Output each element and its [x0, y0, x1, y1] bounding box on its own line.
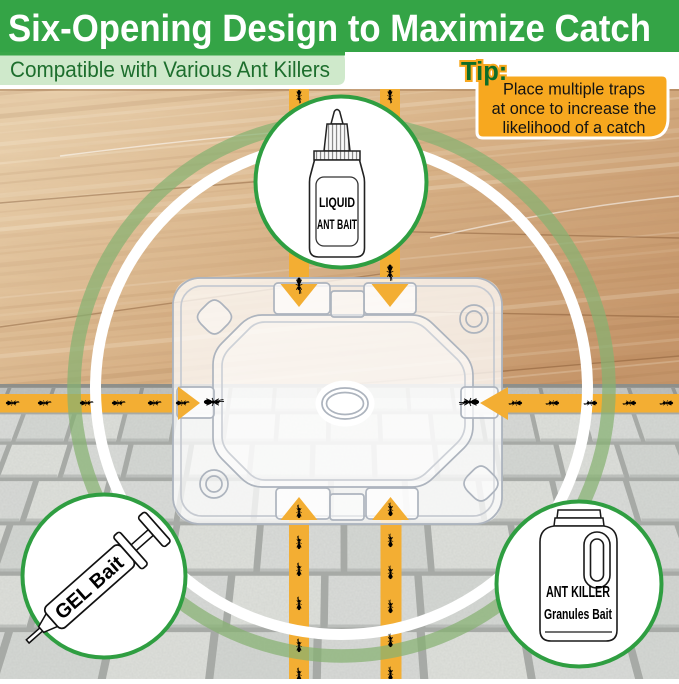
- svg-text:Place multiple traps: Place multiple traps: [503, 81, 645, 99]
- svg-text:at once to increase the: at once to increase the: [492, 100, 657, 118]
- svg-text:LIQUID: LIQUID: [319, 194, 355, 210]
- svg-text:Granules Bait: Granules Bait: [544, 607, 612, 623]
- svg-text:ANT KILLER: ANT KILLER: [546, 584, 610, 601]
- svg-text:Compatible with Various Ant Ki: Compatible with Various Ant Killers: [10, 57, 330, 82]
- svg-text:Tip:: Tip:: [461, 58, 507, 86]
- svg-text:Six-Opening Design to Maximize: Six-Opening Design to Maximize Catch: [8, 8, 651, 50]
- svg-text:ANT BAIT: ANT BAIT: [317, 216, 357, 232]
- svg-text:likelihood of a catch: likelihood of a catch: [502, 119, 645, 137]
